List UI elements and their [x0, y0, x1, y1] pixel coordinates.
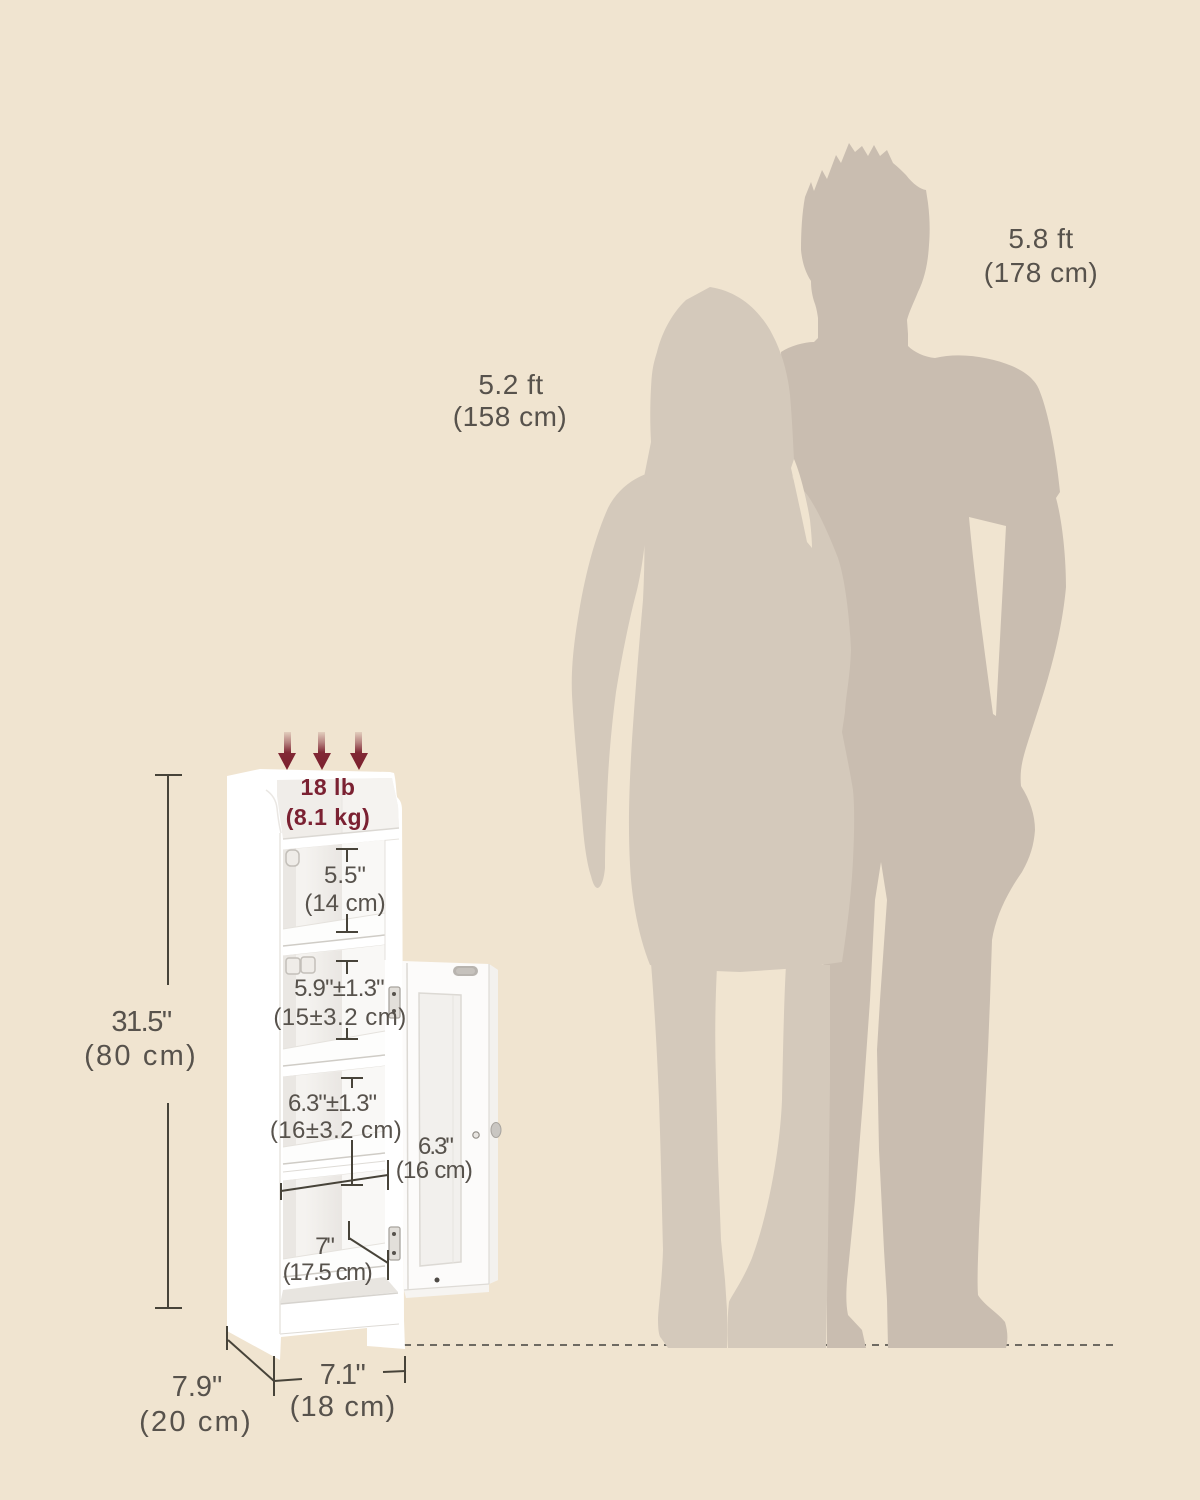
svg-text:5.2 ft: 5.2 ft	[478, 369, 543, 400]
svg-text:(15±3.2 cm): (15±3.2 cm)	[273, 1004, 406, 1031]
svg-text:(16 cm): (16 cm)	[396, 1157, 472, 1184]
svg-text:18 lb: 18 lb	[301, 774, 356, 800]
svg-text:(80 cm): (80 cm)	[84, 1040, 198, 1072]
svg-text:(16±3.2 cm): (16±3.2 cm)	[270, 1117, 402, 1144]
svg-text:(8.1 kg): (8.1 kg)	[286, 804, 371, 830]
svg-text:5.9"±1.3": 5.9"±1.3"	[294, 975, 384, 1002]
svg-text:(20 cm): (20 cm)	[139, 1406, 253, 1438]
svg-text:(18 cm): (18 cm)	[290, 1391, 397, 1423]
svg-text:(14 cm): (14 cm)	[304, 890, 385, 917]
svg-text:7": 7"	[315, 1233, 334, 1260]
svg-text:6.3"±1.3": 6.3"±1.3"	[288, 1090, 376, 1117]
svg-text:(178 cm): (178 cm)	[984, 257, 1098, 288]
svg-text:5.5": 5.5"	[324, 862, 366, 889]
svg-text:7.1": 7.1"	[320, 1359, 366, 1391]
svg-text:7.9": 7.9"	[172, 1371, 223, 1403]
svg-text:5.8 ft: 5.8 ft	[1008, 223, 1073, 254]
svg-text:6.3": 6.3"	[418, 1133, 453, 1160]
svg-text:31.5": 31.5"	[111, 1006, 171, 1038]
svg-text:(17.5 cm): (17.5 cm)	[283, 1259, 372, 1286]
svg-text:(158 cm): (158 cm)	[453, 401, 567, 432]
